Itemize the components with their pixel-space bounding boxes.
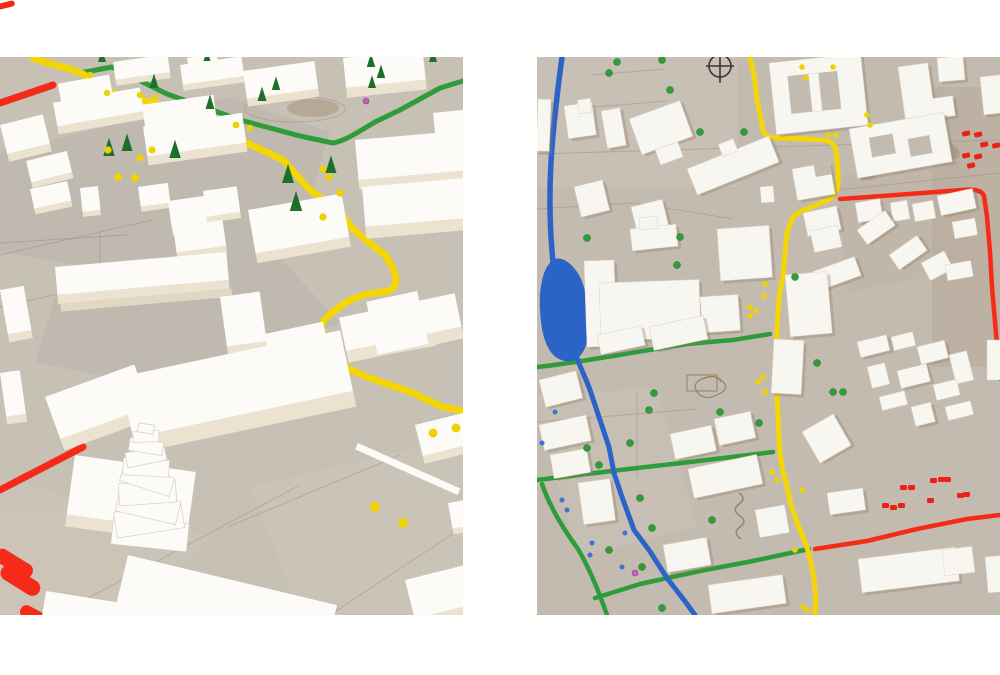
- board-stain: [287, 99, 339, 117]
- page: { "page": { "title": "Architectural mass…: [0, 0, 1000, 675]
- right-photo: [537, 57, 1000, 615]
- yellow-dot: [452, 424, 461, 433]
- building: [717, 225, 776, 284]
- building: [785, 271, 835, 340]
- red-car: [963, 492, 970, 497]
- yellow-dot: [747, 313, 753, 319]
- yellow-dot: [760, 374, 766, 380]
- yellow-dot: [104, 90, 110, 96]
- left-photo-scene: [0, 57, 463, 615]
- building-with-courtyard: [769, 57, 871, 138]
- yellow-dot: [753, 308, 759, 314]
- yellow-dot: [761, 293, 767, 299]
- yellow-dot: [792, 547, 798, 553]
- yellow-dot: [336, 189, 344, 197]
- tree: [792, 274, 799, 281]
- tree: [649, 525, 656, 532]
- yellow-dot: [800, 604, 806, 610]
- yellow-dot: [87, 72, 93, 78]
- building: [952, 218, 978, 239]
- tree: [627, 440, 634, 447]
- blue-dot: [553, 410, 558, 415]
- yellow-dot: [825, 132, 831, 138]
- building: [792, 162, 838, 204]
- yellow-dot: [805, 607, 811, 613]
- tree: [639, 564, 646, 571]
- building: [362, 178, 463, 239]
- yellow-dot: [51, 62, 57, 68]
- tree: [677, 234, 684, 241]
- left-photo: [0, 57, 463, 615]
- tree: [596, 462, 603, 469]
- yellow-dot: [864, 112, 870, 118]
- building: [912, 200, 936, 221]
- tree: [606, 547, 613, 554]
- stray-red-mark: [0, 0, 15, 10]
- tree: [814, 360, 821, 367]
- building: [760, 186, 774, 203]
- building: [987, 340, 1000, 380]
- yellow-dot: [799, 64, 805, 70]
- tree: [659, 57, 666, 64]
- yellow-dot: [152, 94, 158, 100]
- tree: [606, 70, 613, 77]
- yellow-dot: [762, 389, 768, 395]
- building: [203, 186, 241, 222]
- tree: [717, 409, 724, 416]
- building: [937, 57, 968, 85]
- yellow-dot: [233, 122, 240, 129]
- yellow-dot: [247, 125, 254, 132]
- yellow-dot: [833, 132, 839, 138]
- tree: [584, 235, 591, 242]
- tree: [667, 87, 674, 94]
- tree: [756, 420, 763, 427]
- building: [942, 546, 975, 575]
- red-car: [900, 485, 907, 490]
- red-car: [882, 503, 889, 508]
- building: [80, 186, 101, 217]
- building: [578, 478, 619, 527]
- yellow-dot: [830, 64, 836, 70]
- red-car: [890, 505, 897, 510]
- tree: [637, 495, 644, 502]
- yellow-dot: [370, 502, 380, 512]
- yellow-dot: [769, 469, 775, 475]
- yellow-dot: [319, 165, 326, 172]
- tree: [674, 262, 681, 269]
- yellow-dot: [319, 213, 327, 221]
- yellow-dot: [148, 146, 155, 153]
- yellow-dot: [45, 59, 51, 65]
- tree: [830, 389, 837, 396]
- building: [138, 183, 171, 212]
- red-car: [938, 477, 945, 482]
- pink-dot: [632, 570, 638, 576]
- yellow-dot: [799, 487, 805, 493]
- building: [771, 339, 807, 398]
- yellow-dot: [867, 122, 873, 128]
- red-car: [944, 477, 951, 482]
- tree: [697, 129, 704, 136]
- building: [755, 505, 789, 538]
- tree: [646, 407, 653, 414]
- tree: [584, 445, 591, 452]
- yellow-dot: [747, 304, 753, 310]
- blue-dot: [588, 553, 593, 558]
- yellow-dot: [114, 173, 122, 181]
- blue-dot: [620, 565, 625, 570]
- building: [220, 291, 268, 356]
- tree: [651, 390, 658, 397]
- yellow-dot: [755, 379, 761, 385]
- blue-dot: [623, 531, 628, 536]
- yellow-dot: [136, 154, 143, 161]
- yellow-dot: [803, 75, 809, 81]
- red-car: [930, 478, 937, 483]
- tree: [709, 517, 716, 524]
- blue-dot: [560, 498, 565, 503]
- red-car: [957, 493, 964, 498]
- tree: [614, 59, 621, 66]
- yellow-dot: [762, 281, 768, 287]
- yellow-dot: [104, 146, 111, 153]
- blue-dot: [540, 441, 545, 446]
- pink-dot: [363, 98, 369, 104]
- red-car: [927, 498, 934, 503]
- blue-dot: [565, 508, 570, 513]
- yellow-dot: [137, 92, 143, 98]
- yellow-dot: [398, 518, 408, 528]
- blue-dot: [590, 541, 595, 546]
- tree: [840, 389, 847, 396]
- red-car: [898, 503, 905, 508]
- tree: [659, 605, 666, 612]
- yellow-dot: [131, 174, 139, 182]
- building: [537, 99, 554, 155]
- tree: [741, 129, 748, 136]
- right-photo-scene: [537, 57, 1000, 615]
- yellow-dot: [774, 477, 780, 483]
- red-car: [908, 485, 915, 490]
- yellow-dot: [429, 429, 438, 438]
- yellow-dot: [325, 173, 332, 180]
